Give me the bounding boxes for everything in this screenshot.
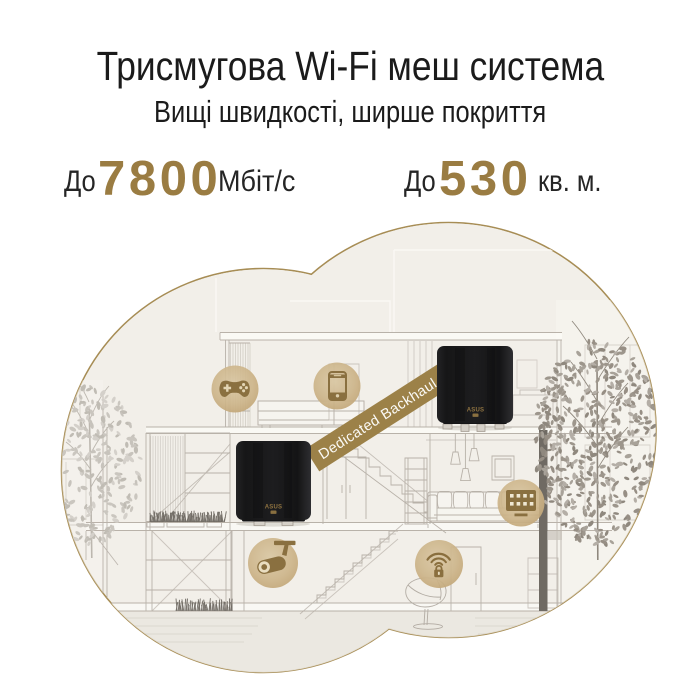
svg-text:ASUS: ASUS bbox=[265, 505, 282, 511]
svg-text:ASUS: ASUS bbox=[467, 408, 484, 414]
